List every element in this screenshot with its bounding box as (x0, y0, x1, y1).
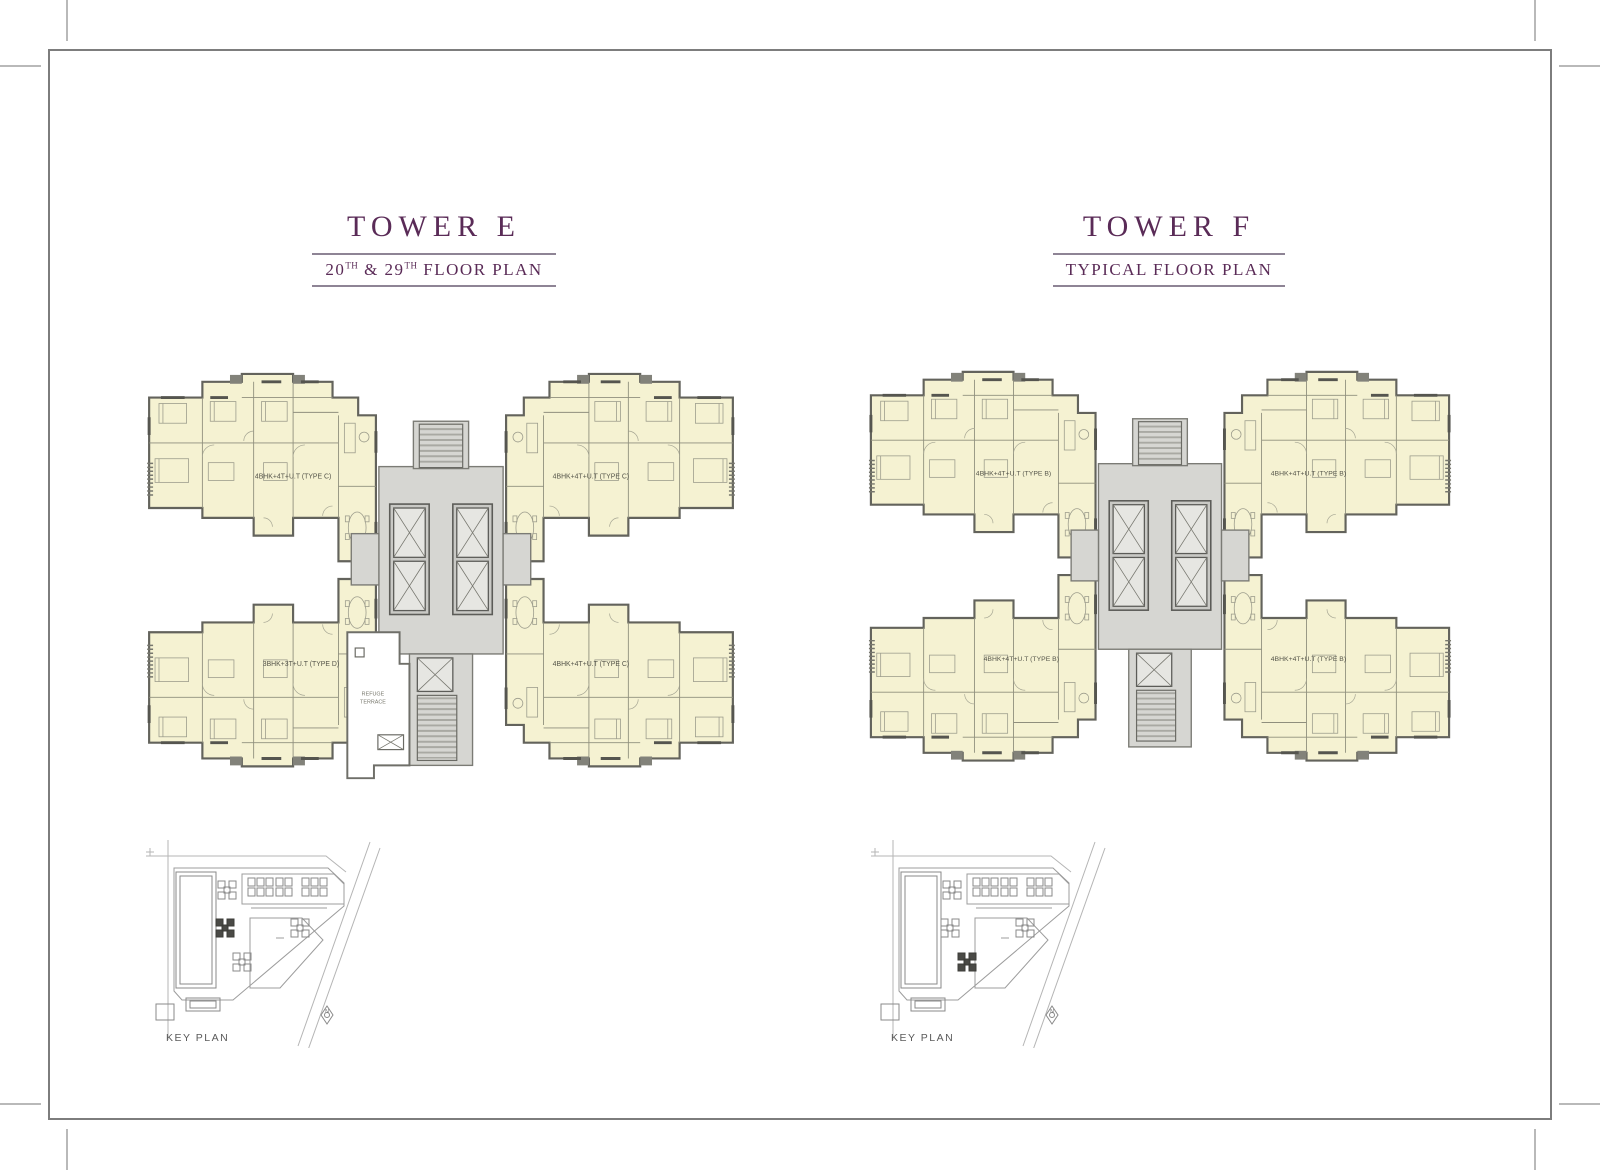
svg-text:N: N (1050, 1009, 1054, 1015)
building-x-top (943, 881, 961, 899)
crop-mark (1559, 1103, 1600, 1105)
tower-f-header: TOWER F TYPICAL FLOOR PLAN (919, 210, 1419, 287)
crop-mark (0, 65, 41, 67)
building-x-top (218, 881, 236, 899)
svg-text:N: N (325, 1009, 329, 1015)
unit-label-tr: 4BHK+4T+U.T (TYPE B) (1271, 470, 1346, 477)
key-plan-label: KEY PLAN (891, 1032, 954, 1044)
crop-mark (1559, 65, 1600, 67)
wing-bottom-left (149, 579, 376, 766)
refuge-terrace: REFUGE TERRACE (347, 632, 409, 778)
wing-bottom-right (1224, 575, 1449, 761)
building-x-tri (291, 919, 309, 937)
tower-e-subtitle: 20TH & 29TH FLOOR PLAN (312, 253, 555, 287)
tower-f-subtitle: TYPICAL FLOOR PLAN (1053, 253, 1286, 287)
crop-mark (1534, 1129, 1536, 1170)
key-plan-buildings (881, 872, 1069, 1020)
key-plan-buildings (156, 872, 344, 1020)
crop-mark (1534, 0, 1536, 41)
wing-top-left (871, 372, 1096, 558)
key-plan-roads (871, 840, 1105, 1048)
unit-label-tl: 4BHK+4T+U.T (TYPE B) (976, 470, 1051, 477)
key-plan-roads (146, 840, 380, 1048)
key-plan-f: N KEY PLAN (855, 828, 1115, 1048)
wing-top-right (1224, 372, 1449, 558)
building-x-tri (1016, 919, 1034, 937)
wing-top-left (149, 374, 376, 561)
wing-top-right (506, 374, 733, 561)
crop-mark (0, 1103, 41, 1105)
unit-label-bl: 3BHK+3T+U.T (TYPE D) (263, 661, 339, 668)
tower-e-floor-plan: REFUGE TERRACE 4BHK+4T+U.T (TYPE C) 4BHK… (145, 368, 737, 792)
building-x-low (958, 953, 976, 971)
key-plan-label: KEY PLAN (166, 1032, 229, 1044)
tower-f-title: TOWER F (919, 210, 1419, 244)
key-plan-e: N KEY PLAN (130, 828, 390, 1048)
unit-label-br: 4BHK+4T+U.T (TYPE C) (553, 661, 629, 668)
refuge-terrace-label: REFUGE (362, 691, 385, 697)
unit-label-bl: 4BHK+4T+U.T (TYPE B) (984, 656, 1059, 663)
building-x-mid (941, 919, 959, 937)
building-x-low (233, 953, 251, 971)
refuge-terrace-label: TERRACE (360, 699, 386, 705)
elevator-core (1071, 419, 1249, 747)
crop-mark (66, 1129, 68, 1170)
tower-e-header: TOWER E 20TH & 29TH FLOOR PLAN (184, 210, 684, 287)
building-x-mid (216, 919, 234, 937)
unit-label-tl: 4BHK+4T+U.T (TYPE C) (255, 473, 331, 480)
wing-bottom-left (871, 575, 1096, 761)
brochure-page: TOWER E 20TH & 29TH FLOOR PLAN TOWER F T… (0, 0, 1600, 1170)
tower-e-title: TOWER E (184, 210, 684, 244)
wing-bottom-right (506, 579, 733, 766)
unit-label-tr: 4BHK+4T+U.T (TYPE C) (553, 473, 629, 480)
tower-f-floor-plan: 4BHK+4T+U.T (TYPE B) 4BHK+4T+U.T (TYPE B… (867, 366, 1453, 786)
crop-mark (66, 0, 68, 41)
unit-label-br: 4BHK+4T+U.T (TYPE B) (1271, 656, 1346, 663)
